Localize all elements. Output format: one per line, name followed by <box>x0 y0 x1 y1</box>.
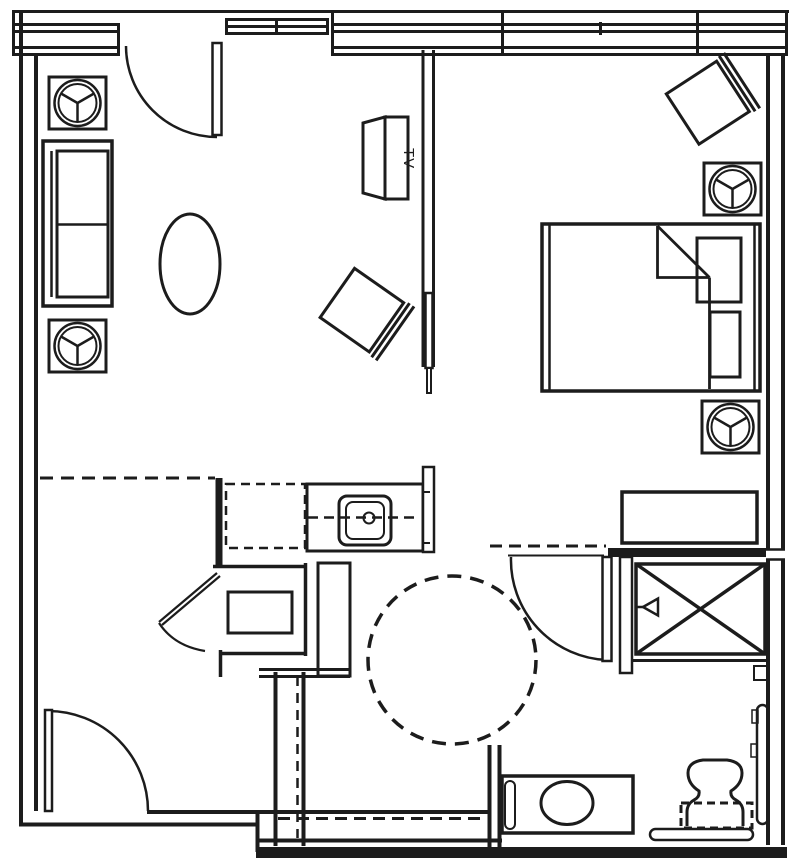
tilted-chair <box>665 53 760 147</box>
closet <box>633 564 766 661</box>
exterior-walls <box>21 10 787 858</box>
tv-label: TV <box>400 148 417 169</box>
round-lamp-table <box>702 401 759 453</box>
tilted-chair <box>318 266 414 361</box>
round-lamp-table <box>49 320 106 372</box>
sofa <box>43 141 112 306</box>
kitchenette <box>40 467 434 567</box>
lavatory-counter <box>502 776 633 833</box>
bathroom-walls <box>19 563 502 852</box>
toilet-area <box>650 666 768 840</box>
floor-plan-svg: TV <box>0 0 807 859</box>
pillow <box>710 312 740 377</box>
toilet-bowl <box>687 760 743 826</box>
oval-coffee-table <box>160 214 220 314</box>
bottom-thick-wall <box>256 847 787 858</box>
entry-door <box>126 43 222 137</box>
bedroom <box>542 53 761 543</box>
round-lamp-table <box>49 77 106 129</box>
wheelchair-turning-circle <box>368 576 536 744</box>
entry-door-leaf <box>213 43 222 135</box>
bathroom-wall-stub <box>318 563 350 676</box>
bathroom-door-swing <box>511 557 607 660</box>
bedroom-south-wall <box>608 548 766 557</box>
undercounter-appliance <box>226 484 305 548</box>
vanity-alcove <box>159 563 307 677</box>
bottom-left-door <box>45 710 148 811</box>
alcove-cabinet <box>228 592 292 633</box>
wall-stub <box>620 557 632 673</box>
grab-bar-horizontal <box>650 829 753 840</box>
kitchen-sink <box>339 496 391 545</box>
blanket-fold <box>658 226 710 389</box>
bathroom-door-leaf <box>603 557 612 661</box>
sliding-door-leaf <box>426 293 433 368</box>
partition-wall <box>423 50 434 393</box>
lavatory-basin <box>541 782 593 825</box>
sliding-door-edge <box>427 368 431 393</box>
entry-door-swing <box>126 46 217 137</box>
living-room: TV <box>43 77 417 372</box>
dresser <box>622 492 757 543</box>
tv-cabinet: TV <box>363 117 417 199</box>
alcove-door-swing <box>159 623 205 651</box>
bottom-left-door-leaf <box>45 710 52 811</box>
counter-edge-detail <box>505 781 515 829</box>
window-wall-top <box>12 10 789 56</box>
bed <box>542 224 760 391</box>
bottom-left-door-swing <box>48 711 148 811</box>
round-lamp-table <box>704 163 761 215</box>
counter-end-panel <box>423 467 434 552</box>
closet-triangle-marker <box>643 599 658 616</box>
alcove-door <box>159 573 220 651</box>
floor-plan: TV <box>0 0 807 859</box>
grab-bar-bracket <box>754 666 768 680</box>
